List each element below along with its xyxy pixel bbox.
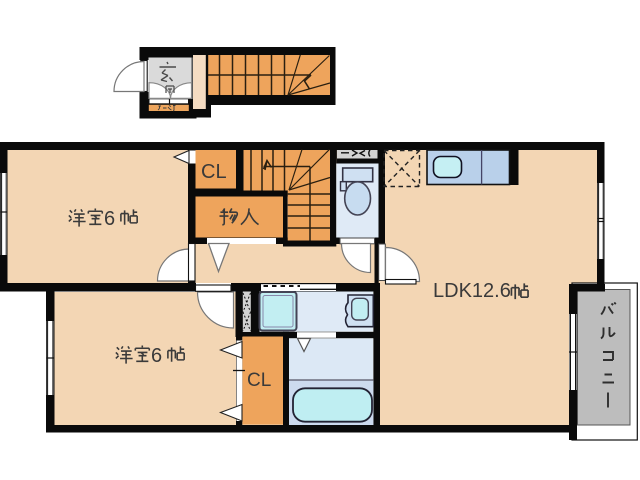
- svg-text:CL: CL: [201, 161, 227, 183]
- svg-text:LDK12.6: LDK12.6: [433, 280, 511, 302]
- svg-text:CL: CL: [247, 370, 271, 391]
- svg-text:6: 6: [104, 208, 115, 230]
- svg-text:6: 6: [151, 345, 162, 367]
